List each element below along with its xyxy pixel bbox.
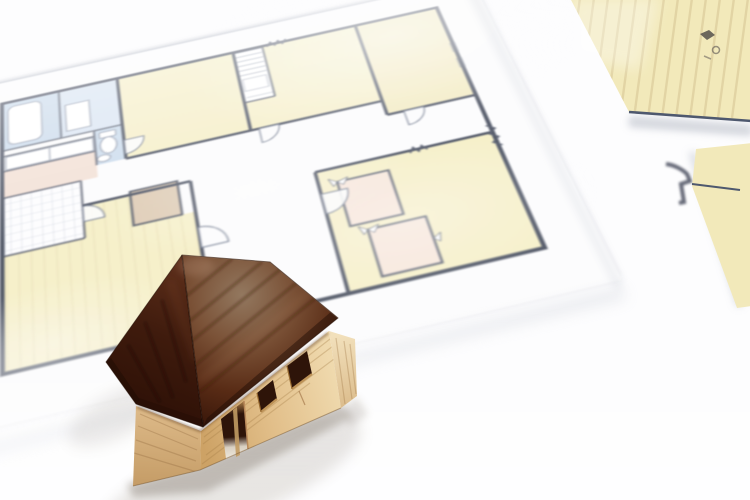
photo-overlay (0, 0, 750, 500)
third-sheet-door-mark (666, 164, 690, 203)
third-sheet-plan-area (692, 143, 750, 308)
roof-apex-glow (178, 256, 214, 276)
second-sheet (564, 0, 750, 136)
third-sheet (666, 143, 750, 308)
photo-scene (0, 0, 750, 500)
